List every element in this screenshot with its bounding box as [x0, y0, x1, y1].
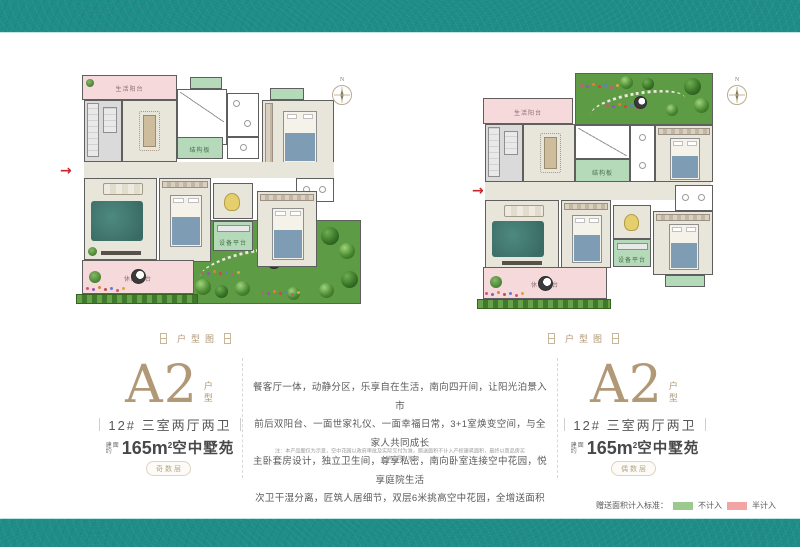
plan-tag-left: 户型图 [160, 332, 231, 345]
entry-arrow-icon: → [472, 186, 484, 196]
tree-icon [694, 98, 709, 113]
compass-icon: N [727, 85, 747, 105]
divider-bar [705, 418, 706, 431]
wardrobe-icon [564, 203, 608, 210]
area-value: 165m [587, 440, 633, 457]
room-bedroom-3 [257, 191, 317, 267]
compass-icon: N [332, 85, 352, 105]
tree-icon [684, 78, 701, 95]
plan-tag-label: 户型图 [560, 332, 607, 345]
toilet-icon [639, 134, 646, 141]
tree-icon [339, 243, 355, 259]
building-text: 12# 三室两厅两卫 [108, 415, 231, 434]
sink-icon [639, 162, 646, 169]
kitchen-counter-icon [488, 127, 500, 177]
room-label: 设备平台 [614, 255, 650, 264]
room-bath-2 [227, 137, 259, 159]
tree-icon [620, 76, 633, 89]
area-legend: 赠送面积计入标准： 不计入 半计入 [596, 500, 776, 511]
round-lounge-icon [634, 96, 647, 109]
void-diagonal [180, 92, 224, 122]
room-bedroom-2 [159, 178, 211, 262]
void-diagonal [578, 128, 627, 156]
tree-icon [235, 281, 250, 296]
bed-icon [170, 195, 202, 247]
room-green-bay-2 [270, 88, 304, 100]
flowers-icon [86, 287, 89, 290]
building-info-right: 12# 三室两厅两卫 [545, 415, 725, 434]
room-void [575, 125, 630, 159]
flowers-icon [606, 104, 609, 107]
moon-chair-icon [538, 276, 553, 291]
room-living-balcony: 生活阳台 [483, 98, 573, 124]
flowers-icon [201, 271, 204, 274]
room-label: 设备平台 [214, 238, 252, 247]
room-label: 结构板 [576, 168, 629, 177]
rug-icon [91, 201, 143, 241]
bed-icon [670, 138, 700, 180]
room-bedroom-2 [561, 200, 611, 268]
compass-needle [731, 89, 743, 101]
tag-ornament-icon [612, 333, 619, 344]
plant-icon [86, 79, 94, 87]
equipment-icon [217, 225, 250, 232]
room-green-bay [190, 77, 222, 89]
entry-arrow-icon: → [60, 166, 72, 176]
tag-ornament-icon [548, 333, 555, 344]
rug-icon [492, 221, 544, 257]
room-living [84, 178, 157, 260]
room-equipment-platform: 设备平台 [613, 239, 651, 267]
sofa-icon [103, 183, 143, 195]
room-living-balcony: 生活阳台 [82, 75, 177, 100]
disclaimer-note: 注：本产品图仅为示意，空中花园以政府审批及实际交付为准，赠送面积不计入产权建筑面… [274, 446, 526, 461]
toilet-icon [233, 100, 240, 107]
flowers-icon [580, 84, 583, 87]
legend-swatch-green [673, 502, 693, 510]
room-kitchen [84, 100, 122, 162]
tree-icon [195, 279, 211, 295]
bottom-wave-band [0, 519, 800, 547]
kitchen-island-icon [103, 107, 117, 133]
wardrobe-icon [162, 181, 208, 188]
tag-ornament-icon [224, 333, 231, 344]
wardrobe-icon [658, 128, 710, 135]
room-bath-3 [675, 185, 713, 211]
unit-name: A2 [590, 363, 663, 407]
dining-table-icon [143, 115, 156, 147]
area-prefix: 建面 约 [571, 443, 585, 457]
description-line: 餐客厅一体，动静分区，乐享自在生活，南向四开间，让阳光泊景入市 [252, 379, 548, 416]
legend-label: 半计入 [752, 500, 776, 511]
unit-title-left: A2 户型 [95, 363, 245, 407]
legend-swatch-pink [727, 502, 747, 510]
description-line: 次卫干湿分离，匠筑人居细节，双层6米挑高空中花园，全增送面积 [252, 490, 548, 509]
tree-icon [642, 78, 654, 90]
room-study [213, 183, 253, 219]
toilet-icon [698, 194, 705, 201]
compass-north-label: N [735, 77, 739, 83]
room-structure-slab: 结构板 [177, 137, 223, 159]
tag-ornament-icon [160, 333, 167, 344]
room-label: 生活阳台 [83, 84, 176, 93]
area-value: 165m [122, 440, 168, 457]
room-bedroom-3 [653, 211, 713, 275]
kitchen-counter-icon [87, 103, 99, 157]
planter-hedge [477, 299, 611, 309]
dining-table-icon [544, 137, 557, 169]
unit-name-suffix: 户型 [667, 381, 680, 407]
room-equipment-platform: 设备平台 [213, 221, 253, 251]
area-info-right: 建面 约 165m 2 空中墅苑 [535, 440, 735, 457]
tree-icon [319, 283, 334, 298]
sofa-icon [504, 205, 544, 217]
unit-name-suffix: 户型 [202, 381, 215, 407]
corridor [84, 162, 334, 178]
tree-icon [287, 287, 300, 300]
column-separator [557, 358, 558, 478]
moon-chair-icon [131, 269, 146, 284]
legend-title: 赠送面积计入标准： [596, 500, 668, 511]
toilet-icon [319, 186, 326, 193]
legend-label: 不计入 [698, 500, 722, 511]
area-suffix: 空中墅苑 [172, 441, 234, 457]
equipment-icon [617, 243, 648, 250]
tree-icon [341, 271, 358, 288]
flowers-icon [261, 291, 264, 294]
compass-north-label: N [340, 77, 344, 83]
planter-hedge [76, 294, 198, 304]
tree-icon [215, 285, 228, 298]
top-wave-band [0, 0, 800, 32]
column-separator [242, 358, 243, 478]
room-structure-slab: 结构板 [575, 159, 630, 182]
tree-icon [321, 227, 339, 245]
area-prefix: 建面 约 [106, 443, 120, 457]
room-bedroom-1 [655, 125, 713, 182]
plant-icon [88, 247, 97, 256]
flowers-icon [485, 292, 488, 295]
plant-icon [89, 271, 101, 283]
sink-icon [244, 120, 251, 127]
lounge-chair-icon [224, 193, 240, 211]
room-leisure-balcony: 休闲阳台 [82, 260, 194, 294]
bed-icon [272, 208, 304, 260]
divider-bar [240, 418, 241, 431]
area-info-left: 建面 约 165m 2 空中墅苑 [70, 440, 270, 457]
unit-name: A2 [125, 363, 198, 407]
wardrobe-icon [656, 214, 710, 221]
room-study [613, 205, 651, 239]
room-living [485, 200, 559, 270]
floor-parity-badge-left: 奇数层 [146, 461, 191, 476]
tv-console-icon [101, 251, 141, 255]
divider-bar [99, 418, 100, 431]
floor-plan-left: 生活阳台 结构板 [82, 75, 362, 305]
room-bath-1 [630, 125, 655, 182]
room-label: 结构板 [178, 145, 222, 154]
sky-garden [575, 73, 713, 125]
wardrobe-icon [260, 194, 314, 201]
room-dining [122, 100, 177, 162]
kitchen-island-icon [504, 131, 518, 155]
plan-tag-label: 户型图 [172, 332, 219, 345]
description-paragraph: 餐客厅一体，动静分区，乐享自在生活，南向四开间，让阳光泊景入市 前后双阳台、一面… [252, 379, 548, 509]
tv-console-icon [502, 261, 542, 265]
building-info-left: 12# 三室两厅两卫 [80, 415, 260, 434]
area-suffix: 空中墅苑 [637, 441, 699, 457]
sink-icon [240, 144, 247, 151]
divider-bar [564, 418, 565, 431]
bed-icon [669, 224, 699, 270]
compass-needle [336, 89, 348, 101]
room-leisure-balcony: 休闲阳台 [483, 267, 607, 299]
room-kitchen [485, 124, 523, 182]
room-dining [523, 124, 575, 182]
plant-icon [490, 276, 502, 288]
floor-plan-right: 生活阳台 结构板 设备平台 [483, 73, 713, 310]
sink-icon [682, 194, 689, 201]
plan-tag-right: 户型图 [548, 332, 619, 345]
tree-icon [666, 104, 678, 116]
room-bath-1 [227, 93, 259, 137]
building-text: 12# 三室两厅两卫 [573, 415, 696, 434]
bed-icon [572, 215, 602, 263]
room-green-bay [665, 275, 705, 287]
bed-icon [283, 111, 317, 163]
lounge-chair-icon [624, 214, 639, 231]
unit-title-right: A2 户型 [560, 363, 710, 407]
floor-parity-badge-right: 偶数层 [611, 461, 656, 476]
room-label: 生活阳台 [484, 108, 572, 117]
